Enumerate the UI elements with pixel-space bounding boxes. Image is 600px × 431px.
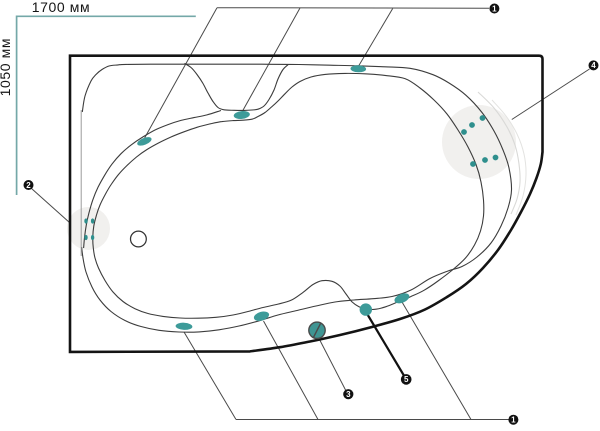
svg-text:2: 2 [26,181,31,190]
svg-text:1: 1 [511,416,516,425]
svg-text:4: 4 [591,61,596,70]
svg-text:5: 5 [404,375,409,384]
svg-text:1700 мм: 1700 мм [32,0,90,15]
svg-text:1: 1 [492,4,497,13]
svg-text:1050 мм: 1050 мм [0,38,13,96]
svg-text:3: 3 [346,390,351,399]
